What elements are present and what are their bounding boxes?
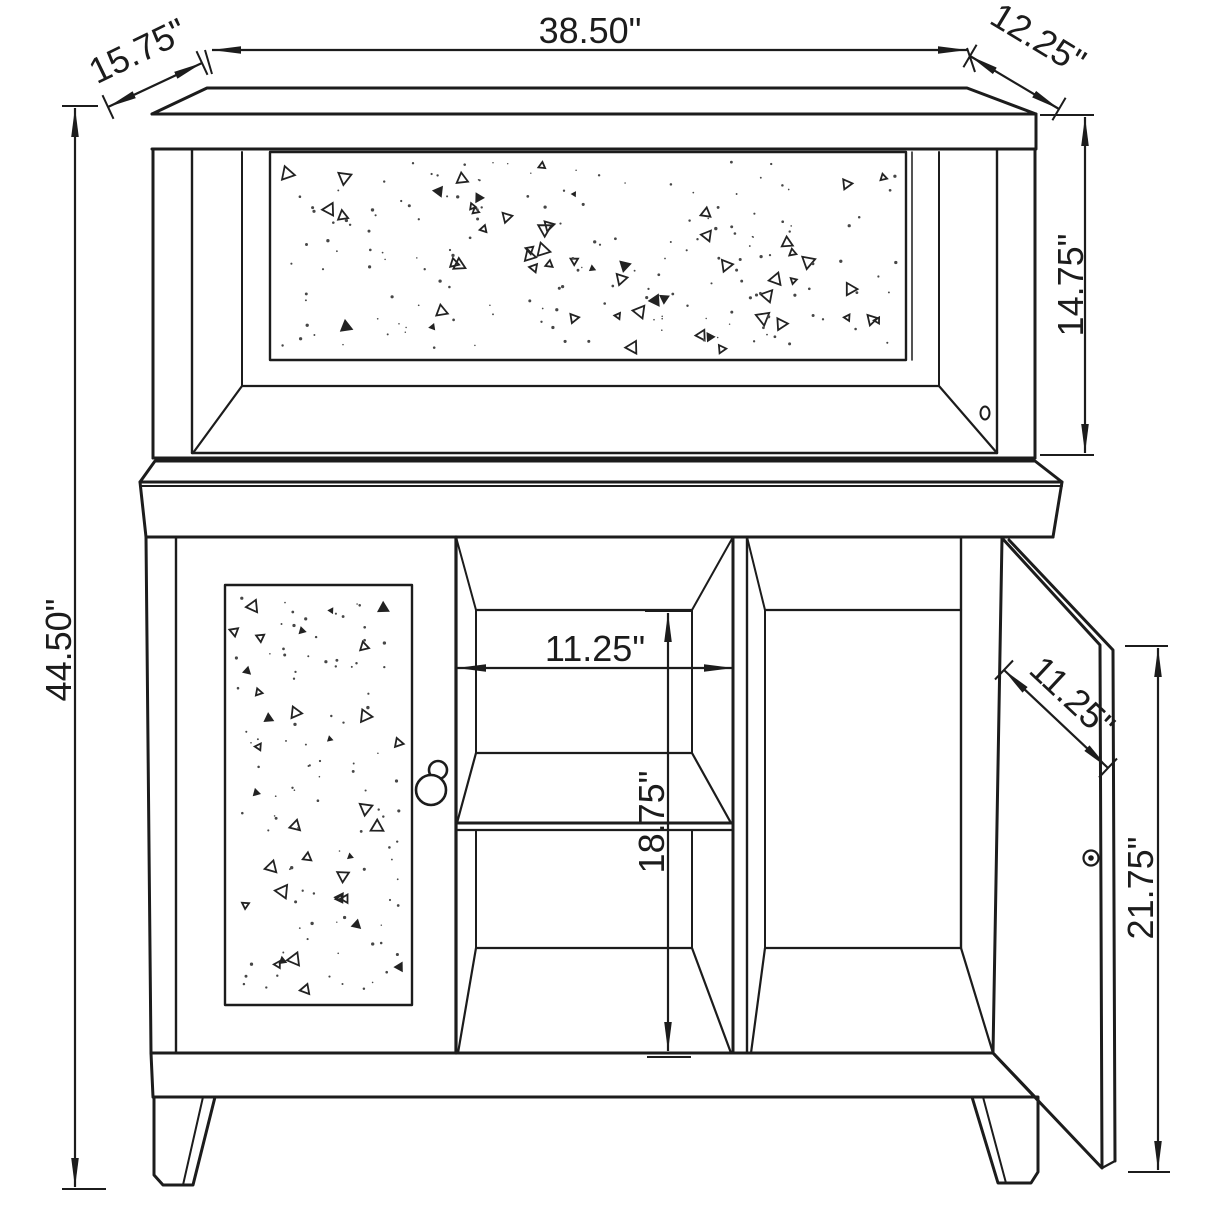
dim-right-depth-label: 12.25" — [984, 0, 1093, 82]
dim-hutch-height: 14.75" — [1040, 115, 1094, 455]
left-leg-inner-line — [183, 1097, 203, 1185]
dim-top-width: 38.50" — [205, 10, 975, 74]
mirror-speckle-pattern-top — [281, 161, 897, 354]
cabinet-left-outer-edge — [146, 537, 151, 1053]
dimension-drawing: 38.50" 15.75" 12.25" 14.75" 44.50" 11.25… — [0, 0, 1214, 1214]
dim-left-depth: 15.75" — [82, 10, 207, 119]
open-door-bottom-edge — [1102, 1161, 1115, 1168]
dim-right-door-height-label: 21.75" — [1120, 837, 1161, 940]
dim-interior-height-label: 18.75" — [631, 771, 672, 874]
left-door — [225, 537, 456, 1053]
dim-interior-height: 18.75" — [631, 611, 693, 1057]
dim-overall-height-label: 44.50" — [38, 599, 79, 702]
left-leg — [154, 1097, 215, 1185]
dim-right-door-depth: 11.25" — [995, 648, 1123, 778]
counter-top-face — [140, 461, 1062, 482]
dim-hutch-height-label: 14.75" — [1050, 234, 1091, 337]
cabinet-right-outer-edge — [993, 538, 1002, 1053]
ceiling-corner-slants — [456, 537, 733, 610]
dim-center-opening-width-label: 11.25" — [545, 628, 645, 669]
hutch-mirror-panel-frame — [270, 152, 906, 360]
dim-right-door-depth-label: 11.25" — [1022, 648, 1123, 746]
open-right-door — [993, 538, 1115, 1168]
dim-top-width-label: 38.50" — [539, 10, 642, 51]
hutch-shelf-right-slant — [939, 386, 997, 453]
drawing-page: 38.50" 15.75" 12.25" 14.75" 44.50" 11.25… — [0, 0, 1214, 1214]
cam-lock-hole — [981, 407, 990, 420]
hutch-top-board-front — [152, 114, 1036, 149]
mirror-speckle-pattern-door — [229, 597, 403, 994]
compartment-floor — [458, 948, 731, 1053]
plinth — [151, 1053, 1035, 1097]
hutch-top-section — [152, 88, 1036, 458]
hutch-shelf-left-slant — [193, 386, 242, 453]
right-ceiling-slant — [747, 537, 765, 610]
hutch-top-board-face — [152, 88, 1036, 114]
right-leg — [972, 1097, 1038, 1183]
dim-overall-height: 44.50" — [38, 106, 106, 1189]
open-door-knob-center — [1088, 855, 1094, 861]
base-and-legs — [151, 1053, 1038, 1185]
right-compartment — [747, 537, 993, 1053]
dim-right-depth: 12.25" — [963, 0, 1093, 120]
dim-right-door-height: 21.75" — [1120, 646, 1170, 1172]
open-door-thickness — [1009, 540, 1115, 1161]
right-compartment-floor — [751, 948, 993, 1053]
counter-top — [140, 461, 1062, 537]
center-compartment — [456, 537, 733, 1053]
counter-band-sides — [140, 482, 1062, 537]
dim-left-depth-label: 15.75" — [82, 10, 192, 92]
middle-shelf-top — [457, 753, 731, 823]
left-door-knob — [416, 775, 446, 805]
